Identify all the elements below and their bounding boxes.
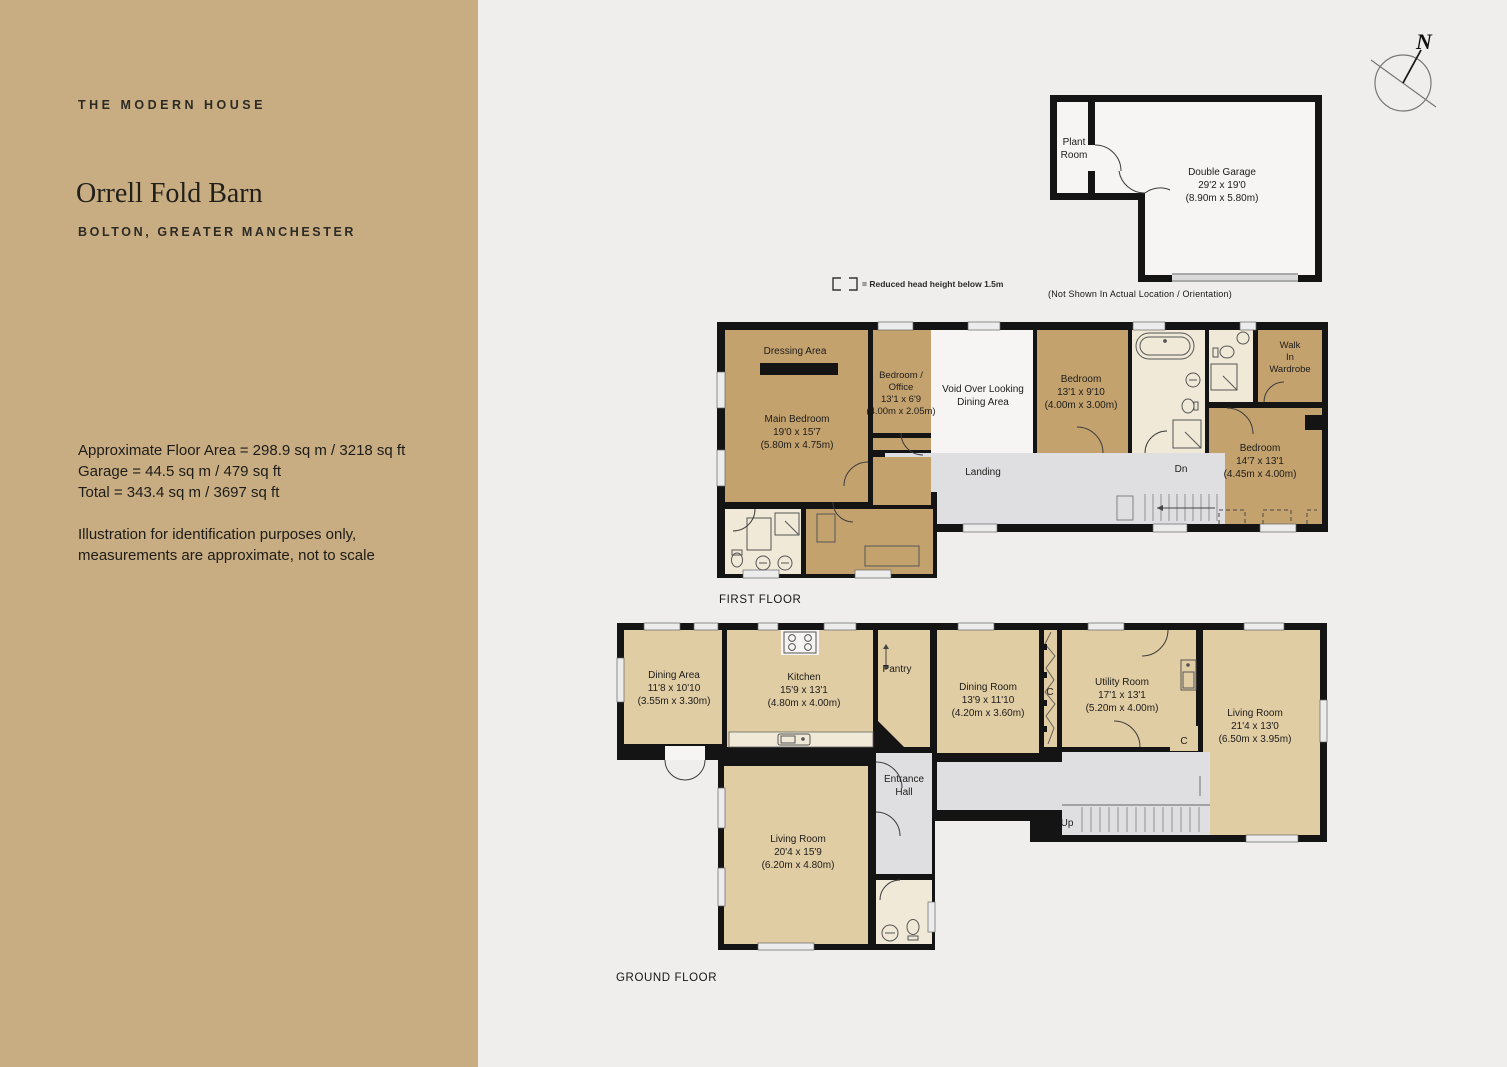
cupboard2-label: C [1180,736,1187,747]
dining-room-ft: 13'9 x 11'10 [962,695,1015,706]
living-left-ft: 20'4 x 15'9 [774,847,822,858]
reduced-head-height-legend: = Reduced head height below 1.5m [832,277,1003,291]
walk-in-label2: In [1286,352,1294,363]
walk-in-label3: Wardrobe [1269,364,1310,375]
office-label1: Bedroom / [879,370,923,381]
disclaimer-line1: Illustration for identification purposes… [78,524,375,545]
stat-floor-area: Approximate Floor Area = 298.9 sq m / 32… [78,440,405,461]
plant-room-label: Plant [1063,137,1086,148]
pantry-label: Pantry [883,664,912,675]
dining-area-ft: 11'8 x 10'10 [648,683,701,694]
kitchen-m: (4.80m x 4.00m) [768,698,841,709]
bedroom3-m: (4.45m x 4.00m) [1224,469,1297,480]
office-m: (4.00m x 2.05m) [866,406,935,417]
kitchen-label: Kitchen [787,672,820,683]
room-shower-room [1209,330,1253,402]
ground-floor-plan: Dining Area 11'8 x 10'10 (3.55m x 3.30m)… [610,616,1332,956]
room-wc [876,880,932,944]
stat-total-area: Total = 343.4 sq m / 3697 sq ft [78,482,405,503]
living-left-label: Living Room [770,834,826,845]
main-bedroom-label: Main Bedroom [764,414,829,425]
stat-garage-area: Garage = 44.5 sq m / 479 sq ft [78,461,405,482]
area-stats: Approximate Floor Area = 298.9 sq m / 32… [78,440,405,503]
disclaimer: Illustration for identification purposes… [78,524,375,566]
entrance-hall-label1: Entrance [884,774,924,785]
cupboard1-label: C [1046,687,1053,698]
living-right-ft: 21'4 x 13'0 [1231,721,1279,732]
dressing-area-label: Dressing Area [764,346,827,357]
dining-area-label: Dining Area [648,670,700,681]
first-floor-plan: Dressing Area Main Bedroom 19'0 x 15'7 (… [715,320,1330,585]
ground-floor-caption: GROUND FLOOR [616,972,717,984]
room-ensuite-bathroom [725,509,801,574]
legend-text: = Reduced head height below 1.5m [862,279,1003,289]
double-garage-dims-m: (8.90m x 5.80m) [1186,193,1259,204]
page-title: Orrell Fold Barn [76,178,263,210]
property-location: BOLTON, GREATER MANCHESTER [78,225,356,239]
dining-area-m: (3.55m x 3.30m) [638,696,711,707]
first-floor-caption: FIRST FLOOR [719,594,801,606]
kitchen-ft: 15'9 x 13'1 [780,685,828,696]
utility-ft: 17'1 x 13'1 [1098,690,1146,701]
dining-room-m: (4.20m x 3.60m) [952,708,1025,719]
double-garage-label: Double Garage [1188,167,1256,178]
walk-in-label1: Walk [1280,340,1301,351]
bedroom3-label: Bedroom [1240,443,1281,454]
entrance-hall-label2: Hall [895,787,912,798]
dining-room-label: Dining Room [959,682,1017,693]
compass-icon: N [1363,28,1447,120]
bedroom2-m: (4.00m x 3.00m) [1045,400,1118,411]
main-bedroom-m: (5.80m x 4.75m) [761,440,834,451]
bedroom2-ft: 13'1 x 9'10 [1057,387,1105,398]
compass-north-label: N [1415,29,1433,54]
garage-door-icon [1172,273,1298,282]
office-ft: 13'1 x 6'9 [881,394,921,405]
garage-note: (Not Shown In Actual Location / Orientat… [1048,289,1232,299]
double-doors [665,746,705,780]
utility-label: Utility Room [1095,677,1149,688]
garage-floorplan: Plant Room Double Garage 29'2 x 19'0 (8.… [1048,90,1328,286]
double-garage-dims-ft: 29'2 x 19'0 [1198,180,1246,191]
kitchen-counter [729,732,873,747]
brand: THE MODERN HOUSE [78,98,266,112]
void-label1: Void Over Looking [942,384,1024,395]
room-living-right [1203,630,1320,835]
office-label2: Office [889,382,914,393]
living-right-label: Living Room [1227,708,1283,719]
living-left-m: (6.20m x 4.80m) [762,860,835,871]
void-label2: Dining Area [957,397,1009,408]
hall-corridor [937,762,1062,810]
stairs-up-label: Up [1061,818,1074,829]
stove-icon [781,630,819,655]
utility-m: (5.20m x 4.00m) [1086,703,1159,714]
reduced-head-height-icon [832,277,858,291]
stairs-dn-label: Dn [1175,464,1188,475]
bedroom2-label: Bedroom [1061,374,1102,385]
bedroom3-ft: 14'7 x 13'1 [1236,456,1284,467]
sidebar: THE MODERN HOUSE Orrell Fold Barn BOLTON… [0,0,478,1067]
disclaimer-line2: measurements are approximate, not to sca… [78,545,375,566]
wardrobe-icon [760,363,838,375]
main-bedroom-ft: 19'0 x 15'7 [773,427,821,438]
living-right-m: (6.50m x 3.95m) [1219,734,1292,745]
plant-room-label2: Room [1061,150,1088,161]
floorplan-page: { "sidebar": { "brand": "THE MODERN HOUS… [0,0,1507,1067]
landing-label: Landing [965,467,1001,478]
